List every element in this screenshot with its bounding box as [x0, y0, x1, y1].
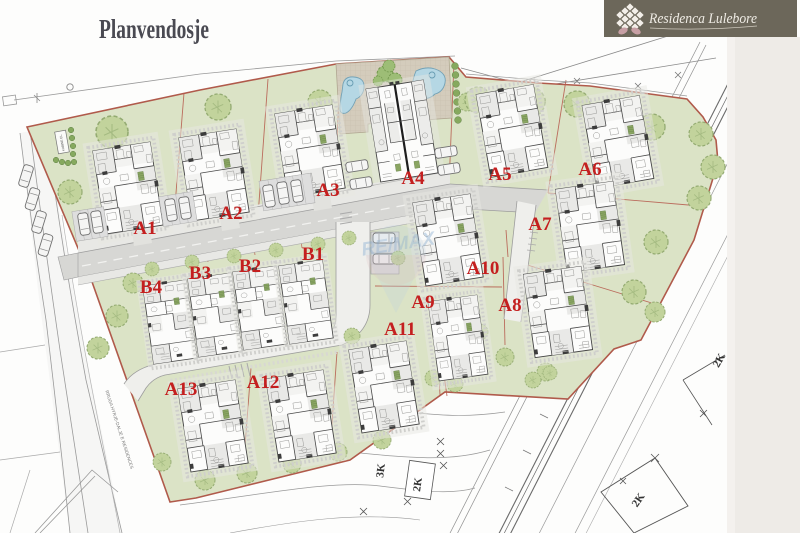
svg-text:A5: A5: [488, 164, 511, 185]
svg-text:A6: A6: [578, 159, 601, 180]
svg-text:A4: A4: [401, 168, 425, 189]
svg-text:B2: B2: [239, 256, 261, 277]
svg-text:B4: B4: [140, 277, 163, 298]
svg-text:Residenca Lulebore: Residenca Lulebore: [648, 11, 757, 27]
svg-text:B1: B1: [302, 244, 324, 265]
svg-text:A9: A9: [411, 292, 434, 313]
svg-text:A11: A11: [384, 319, 416, 340]
svg-text:A3: A3: [316, 180, 339, 201]
svg-text:B3: B3: [189, 263, 211, 284]
svg-text:A1: A1: [133, 218, 156, 239]
svg-text:2K: 2K: [411, 476, 425, 492]
svg-text:A2: A2: [219, 203, 242, 224]
svg-text:A12: A12: [247, 372, 280, 393]
svg-text:A7: A7: [528, 214, 552, 235]
svg-text:A10: A10: [467, 258, 500, 279]
svg-text:3K: 3K: [374, 462, 388, 478]
svg-text:A13: A13: [165, 379, 198, 400]
svg-text:Planvendosje: Planvendosje: [99, 14, 209, 44]
svg-text:A8: A8: [498, 295, 521, 316]
